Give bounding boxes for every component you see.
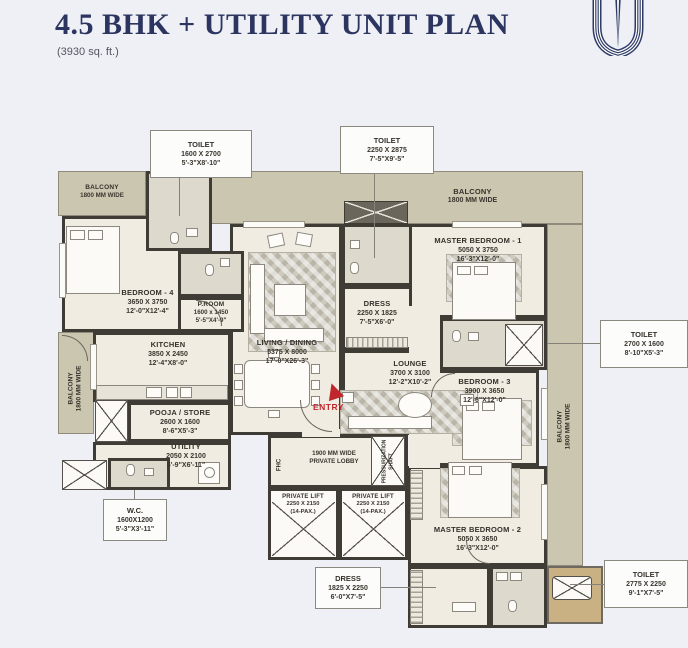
pillow	[457, 266, 471, 275]
wc-pan	[508, 600, 517, 612]
duct-wc	[62, 460, 107, 490]
callout-wc: W.C. 1600X1200 5'-3"X3'-11"	[103, 499, 167, 541]
leader-line	[134, 490, 135, 499]
pillow	[88, 230, 103, 240]
leader-line	[570, 584, 606, 585]
wardrobe-dress-center	[346, 337, 408, 348]
dining-chair	[311, 364, 320, 374]
dining-chair	[311, 380, 320, 390]
bathtub	[552, 576, 592, 600]
window	[541, 388, 548, 440]
dining-chair	[268, 350, 280, 358]
callout-name: TOILET	[633, 570, 660, 580]
leader-line	[374, 172, 375, 258]
window	[452, 221, 522, 228]
kitchen-counter	[96, 385, 228, 400]
dining-chair	[234, 396, 243, 406]
window	[243, 221, 305, 228]
coffee-table	[274, 284, 306, 316]
pillow	[474, 266, 488, 275]
dining-chair	[234, 380, 243, 390]
sink	[144, 468, 154, 476]
dining-chair	[268, 410, 280, 418]
lounge-table	[398, 392, 432, 418]
wc-pan	[170, 232, 179, 244]
pillow	[469, 466, 482, 475]
callout-mm: 2250 X 2875	[367, 146, 407, 155]
wardrobe-dress-bottom	[410, 570, 423, 624]
callout-mm: 1600X1200	[117, 516, 153, 525]
sink	[468, 332, 479, 341]
pressurization-shaft-box	[371, 436, 405, 486]
planter-box	[344, 201, 408, 224]
callout-name: DRESS	[335, 574, 361, 584]
wc-pan	[126, 464, 135, 476]
callout-name: TOILET	[374, 136, 401, 146]
lift-1-cross	[272, 502, 335, 556]
callout-mm: 1825 X 2250	[328, 584, 368, 593]
leader-line	[179, 178, 180, 216]
kitchen-sink	[166, 387, 178, 398]
balcony-right	[547, 224, 583, 566]
callout-ft: 5'-3"X8'-10"	[182, 159, 221, 168]
callout-toilet-right: TOILET 2700 X 1600 8'-10"X5'-3"	[600, 320, 688, 368]
page-title: 4.5 BHK + UTILITY UNIT PLAN	[55, 8, 509, 42]
callout-name: TOILET	[188, 140, 215, 150]
sink	[496, 572, 508, 581]
pillow	[70, 230, 85, 240]
leader-line	[380, 587, 436, 588]
brand-shield-logo	[592, 0, 644, 56]
sink	[510, 572, 522, 581]
callout-ft: 9'-1"X7'-5"	[629, 589, 664, 598]
callout-ft: 5'-3"X3'-11"	[116, 525, 154, 534]
washing-machine-door	[204, 467, 215, 478]
callout-dress-bottom: DRESS 1825 X 2250 6'-0"X7'-5"	[315, 567, 381, 609]
sink	[350, 240, 360, 249]
window	[541, 484, 548, 540]
sofa-left	[250, 264, 265, 334]
lift-2-cross	[343, 502, 404, 556]
callout-mm: 2700 X 1600	[624, 340, 664, 349]
room-wc	[108, 458, 170, 490]
leader-line	[547, 343, 600, 344]
room-toilet-top-center	[342, 224, 412, 286]
kitchen-hob	[146, 387, 162, 398]
lounge-sofa	[348, 416, 432, 429]
wc-pan	[452, 330, 461, 342]
balcony-top-left	[58, 171, 146, 216]
sink	[220, 258, 230, 267]
sofa-bottom	[264, 328, 324, 342]
callout-toilet-top-left: TOILET 1600 X 2700 5'-3"X8'-10"	[150, 130, 252, 178]
entry-label: ENTRY	[313, 402, 344, 412]
armchair	[295, 232, 313, 248]
window	[90, 344, 97, 390]
callout-ft: 6'-0"X7'-5"	[331, 593, 366, 602]
shaft-toilet-right	[505, 324, 543, 366]
callout-mm: 1600 X 2700	[181, 150, 221, 159]
duct-kitchen	[95, 400, 128, 442]
callout-mm: 2775 X 2250	[626, 580, 666, 589]
wc-pan	[350, 262, 359, 274]
kitchen-sink	[180, 387, 192, 398]
callout-name: TOILET	[631, 330, 658, 340]
callout-toilet-top-center: TOILET 2250 X 2875 7'-5"X9'-5"	[340, 126, 434, 174]
sink	[186, 228, 198, 237]
room-pooja-store	[128, 402, 231, 442]
floor-plan-page: 4.5 BHK + UTILITY UNIT PLAN (3930 sq. ft…	[0, 0, 688, 648]
wc-pan	[205, 264, 214, 276]
callout-ft: 8'-10"X5'-3"	[625, 349, 664, 358]
callout-name: W.C.	[127, 506, 143, 516]
pillow	[482, 402, 495, 411]
callout-ft: 7'-5"X9'-5"	[370, 155, 405, 164]
pillow	[452, 466, 465, 475]
dress-bench	[452, 602, 476, 612]
page-subtitle: (3930 sq. ft.)	[57, 46, 119, 58]
callout-toilet-bottom-right: TOILET 2775 X 2250 9'-1"X7'-5"	[604, 560, 688, 608]
lounge-stool	[460, 394, 474, 406]
wardrobe-mb2	[410, 470, 423, 520]
window	[59, 243, 66, 298]
dining-chair	[234, 364, 243, 374]
